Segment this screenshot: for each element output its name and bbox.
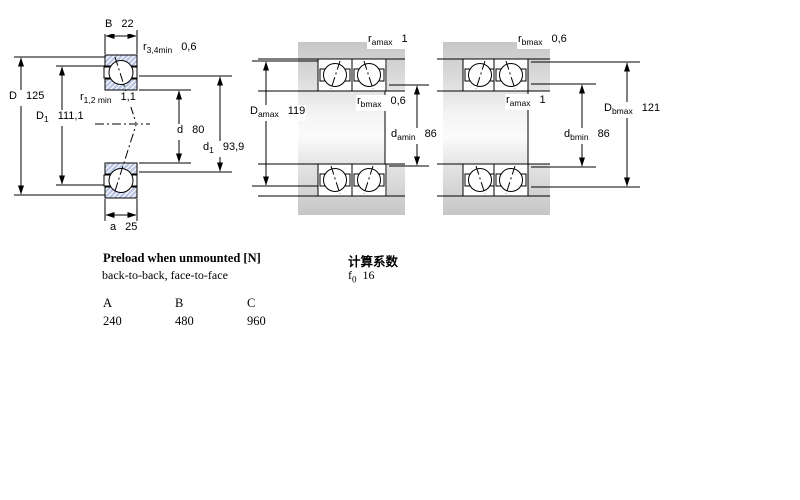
bearing-drawing-svg bbox=[0, 0, 800, 345]
preload-column-c: C 960 bbox=[247, 296, 266, 329]
preload-header-c: C bbox=[247, 296, 266, 311]
dim-label-right-ramax: ramax1 bbox=[505, 94, 547, 110]
dim-label-Damax: Damax119 bbox=[249, 105, 306, 121]
dim-label-r12min: r1,2 min1,1 bbox=[79, 91, 137, 107]
preload-value-a: 240 bbox=[103, 314, 122, 328]
bearing-specification-drawing: B22 r3,4min0,6 D125 D1111,1 r1,2 min1,1 … bbox=[0, 0, 800, 500]
preload-header-a: A bbox=[103, 296, 122, 311]
dim-label-damin: damin86 bbox=[390, 128, 438, 144]
preload-subtitle: back-to-back, face-to-face bbox=[102, 268, 228, 283]
dim-label-bore-d: d80 bbox=[176, 124, 205, 140]
preload-column-b: B 480 bbox=[175, 296, 194, 329]
dim-label-d1: d193,9 bbox=[202, 141, 245, 157]
dim-label-Dbmax: Dbmax121 bbox=[603, 102, 661, 118]
dim-label-dbmin: dbmin86 bbox=[563, 128, 611, 144]
preload-column-a: A 240 bbox=[103, 296, 122, 329]
dim-label-mid-ramax: ramax1 bbox=[367, 33, 409, 49]
dim-label-right-rbmax: rbmax0,6 bbox=[517, 33, 568, 49]
dim-label-D1: D1111,1 bbox=[35, 110, 85, 126]
dim-label-mid-rbmax: rbmax0,6 bbox=[356, 95, 407, 111]
preload-value-c: 960 bbox=[247, 314, 266, 328]
preload-header-b: B bbox=[175, 296, 194, 311]
preload-title: Preload when unmounted [N] bbox=[103, 251, 261, 266]
calc-factor-f0: f0 16 bbox=[348, 268, 375, 284]
dim-label-r34min: r3,4min0,6 bbox=[142, 41, 197, 57]
dim-label-width-B: B22 bbox=[104, 18, 135, 34]
dim-label-a: a25 bbox=[109, 221, 138, 237]
dim-label-outer-diameter-D: D125 bbox=[8, 90, 45, 106]
preload-value-b: 480 bbox=[175, 314, 194, 328]
